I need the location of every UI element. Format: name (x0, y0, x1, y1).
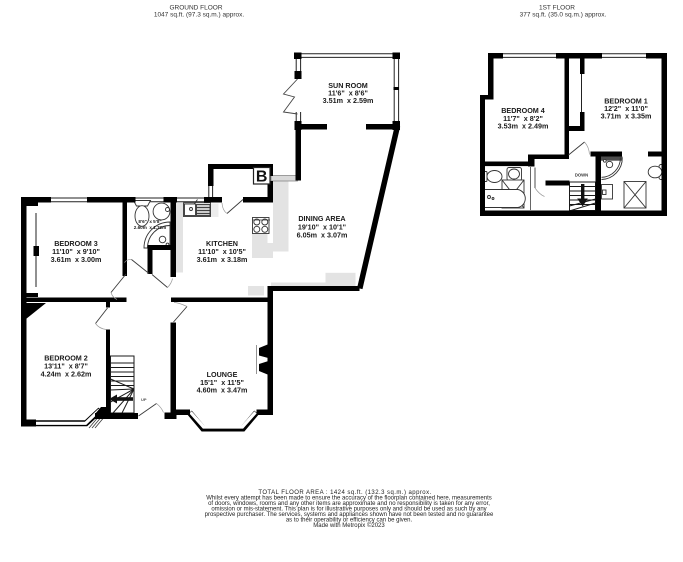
svg-text:6.05m x 3.07m: 6.05m x 3.07m (297, 231, 348, 240)
svg-text:8'6" x 5'8": 8'6" x 5'8" (138, 219, 161, 224)
svg-text:377 sq.ft. (35.0 sq.m.) approx: 377 sq.ft. (35.0 sq.m.) approx. (520, 12, 607, 19)
svg-text:3.51m x 2.59m: 3.51m x 2.59m (323, 96, 374, 105)
svg-text:1047 sq.ft. (97.3 sq.m.) appro: 1047 sq.ft. (97.3 sq.m.) approx. (154, 12, 245, 19)
svg-text:UP: UP (141, 397, 147, 402)
svg-text:3.61m x 3.00m: 3.61m x 3.00m (51, 255, 102, 264)
svg-text:3.71m x 3.35m: 3.71m x 3.35m (601, 112, 652, 121)
svg-text:3.53m x 2.49m: 3.53m x 2.49m (498, 122, 549, 131)
svg-text:B: B (256, 169, 268, 186)
svg-text:3.61m x 3.18m: 3.61m x 3.18m (197, 255, 248, 264)
svg-text:1ST FLOOR: 1ST FLOOR (539, 5, 575, 12)
svg-text:DOWN: DOWN (575, 173, 588, 178)
svg-text:Made with Metropix ©2023: Made with Metropix ©2023 (313, 522, 385, 529)
svg-text:GROUND FLOOR: GROUND FLOOR (169, 5, 222, 12)
svg-text:4.24m x 2.62m: 4.24m x 2.62m (41, 370, 92, 379)
svg-text:4.60m x 3.47m: 4.60m x 3.47m (197, 386, 248, 395)
svg-text:2.60m x 1.72m: 2.60m x 1.72m (134, 225, 166, 230)
